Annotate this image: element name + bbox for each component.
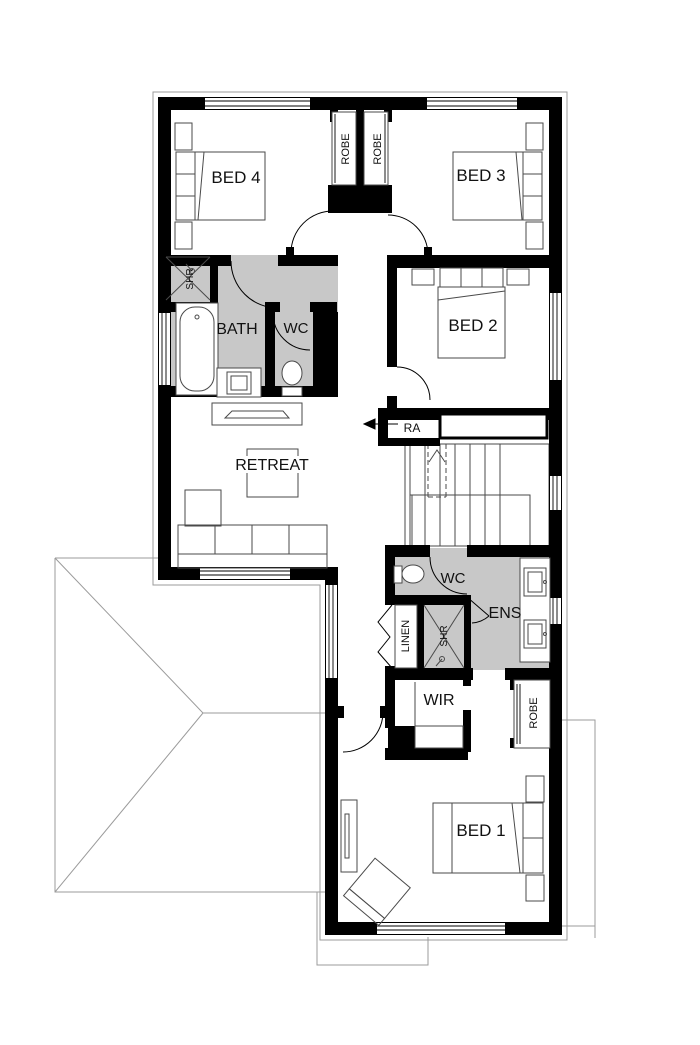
room-label-shr-ens: SHR	[439, 625, 450, 646]
retreat-furniture	[178, 403, 327, 568]
walls	[158, 97, 562, 935]
door-hall-bed1	[343, 712, 383, 752]
room-labels: BED 4 BED 3 BED 2 BED 1 BATH WC RETREAT …	[185, 133, 540, 840]
roof-left-hips	[55, 558, 203, 892]
stair-void-shelf	[440, 414, 547, 438]
bed3-side-table	[526, 123, 543, 150]
bed1-side-table	[526, 776, 544, 802]
bed2-side-table	[412, 269, 434, 285]
wall-robe-divider	[356, 110, 364, 187]
wall-wir-east	[463, 710, 471, 752]
room-label-linen: LINEN	[400, 620, 412, 652]
room-label-bed3: BED 3	[456, 166, 505, 185]
window-bed1	[377, 923, 505, 934]
room-label-robe-bed1: ROBE	[528, 697, 540, 728]
room-label-bed2: BED 2	[448, 316, 497, 335]
window-bath	[159, 313, 170, 385]
bed4-side-table	[175, 222, 192, 249]
window-bed2	[550, 293, 561, 380]
stair-direction-arrow	[429, 450, 445, 462]
bed2-furniture	[412, 268, 529, 358]
window-ens	[550, 598, 561, 624]
room-label-shr-bath: SHR	[185, 268, 196, 289]
room-label-bed4: BED 4	[211, 168, 260, 187]
room-label-retreat: RETREAT	[235, 457, 309, 474]
eave-offset-outline	[153, 92, 567, 940]
wall-shr-ens-east	[464, 605, 471, 668]
room-label-bath: BATH	[216, 321, 257, 338]
wall-bed2-west	[387, 268, 397, 367]
door-bed3	[388, 215, 428, 255]
bed3-bed	[453, 152, 523, 220]
wall-ens-north-b	[467, 545, 562, 557]
bathtub	[176, 303, 218, 395]
retreat-chaise	[185, 490, 221, 526]
window-bed3	[427, 98, 517, 109]
bed1-furniture	[341, 776, 544, 925]
wall-wc-duct	[313, 312, 338, 397]
toilet-bath	[282, 361, 302, 385]
wall-ra-south	[378, 438, 440, 446]
toilet-ens-cistern	[394, 566, 402, 583]
wall-landing-block	[328, 185, 392, 213]
bed1-chair	[344, 858, 411, 925]
wall-ens-north-a	[385, 545, 430, 557]
staircase	[405, 444, 549, 546]
room-label-robe-right: ROBE	[372, 133, 384, 164]
room-label-robe-left: ROBE	[340, 133, 352, 164]
room-label-wir: WIR	[423, 692, 454, 709]
door-bed2	[397, 367, 430, 400]
bed3-side-table	[526, 222, 543, 249]
door-bed4	[291, 211, 333, 253]
room-label-ra: RA	[404, 421, 421, 435]
bed3-furniture	[453, 123, 543, 249]
bed2-side-table	[507, 269, 529, 285]
room-label-bed1: BED 1	[456, 821, 505, 840]
wall-bed2-north	[387, 255, 562, 268]
floor-plan-page: BED 4 BED 3 BED 2 BED 1 BATH WC RETREAT …	[0, 0, 700, 1045]
retreat-tv-cabinet	[212, 403, 302, 425]
wall-wir-block	[388, 726, 415, 750]
ra-arrow-head	[364, 419, 375, 429]
door-linen-bifold	[378, 605, 392, 668]
wall-linen-east	[417, 605, 424, 668]
stair-walk-line	[428, 444, 446, 497]
room-label-wc-ens: WC	[441, 570, 466, 587]
wall-wir-west	[385, 680, 395, 728]
window-hall	[326, 585, 337, 678]
wall-ens-south-a	[385, 668, 473, 680]
wall-exterior-right	[549, 97, 562, 935]
bed1-side-table	[526, 875, 544, 901]
bed4-side-table	[175, 123, 192, 150]
window-retreat	[200, 568, 290, 579]
room-label-wc-bath: WC	[284, 320, 309, 337]
window-stairs	[550, 476, 561, 510]
windows	[159, 98, 561, 934]
wall-ens-south-b	[505, 668, 562, 680]
room-label-ens: ENS	[489, 605, 522, 622]
wall-wc-ens-south	[385, 595, 471, 605]
floor-plan-drawing: BED 4 BED 3 BED 2 BED 1 BATH WC RETREAT …	[0, 0, 700, 1045]
toilet-ens	[402, 565, 424, 583]
wall-wir-south	[385, 748, 468, 760]
window-bed4	[205, 98, 310, 109]
wall-bed4-south-b	[278, 255, 338, 266]
